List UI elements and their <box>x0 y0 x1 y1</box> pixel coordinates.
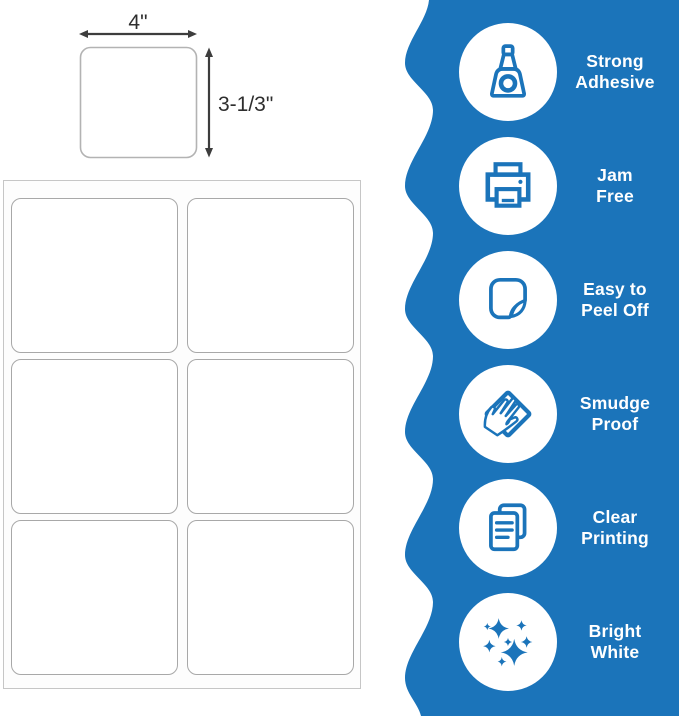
feature-label: Strong Adhesive <box>557 51 679 93</box>
printer-icon <box>479 157 537 215</box>
feature-icon-circle <box>459 137 557 235</box>
feature-label-line2: Peel Off <box>557 300 673 321</box>
feature-label-line1: Smudge <box>557 393 673 414</box>
feature-label-line1: Easy to <box>557 279 673 300</box>
feature-label: Easy to Peel Off <box>557 279 679 321</box>
feature-label-line2: Printing <box>557 528 673 549</box>
glue-bottle-icon <box>479 43 537 101</box>
feature-row-jam-free: Jam Free <box>459 137 679 235</box>
feature-row-smudge-proof: Smudge Proof <box>459 365 679 463</box>
peel-sticker-icon <box>479 271 537 329</box>
feature-label-line2: White <box>557 642 673 663</box>
feature-icon-circle <box>459 479 557 577</box>
feature-row-clear-printing: Clear Printing <box>459 479 679 577</box>
feature-label-line1: Strong <box>557 51 673 72</box>
feature-label: Clear Printing <box>557 507 679 549</box>
feature-label-line1: Clear <box>557 507 673 528</box>
feature-label: Bright White <box>557 621 679 663</box>
feature-row-strong-adhesive: Strong Adhesive <box>459 23 679 121</box>
product-infographic: 4" 3-1/3" <box>0 0 679 716</box>
feature-label: Jam Free <box>557 165 679 207</box>
feature-row-easy-peel: Easy to Peel Off <box>459 251 679 349</box>
sparkles-icon <box>479 613 537 671</box>
feature-label-line2: Adhesive <box>557 72 673 93</box>
feature-label-line1: Bright <box>557 621 673 642</box>
feature-label-line2: Proof <box>557 414 673 435</box>
feature-icon-circle <box>459 251 557 349</box>
feature-row-bright-white: Bright White <box>459 593 679 691</box>
feature-label-line1: Jam <box>557 165 673 186</box>
feature-label: Smudge Proof <box>557 393 679 435</box>
feature-label-line2: Free <box>557 186 673 207</box>
documents-icon <box>479 499 537 557</box>
feature-icon-circle <box>459 23 557 121</box>
feature-icon-circle <box>459 593 557 691</box>
smudge-hand-icon <box>479 385 537 443</box>
feature-icon-circle <box>459 365 557 463</box>
